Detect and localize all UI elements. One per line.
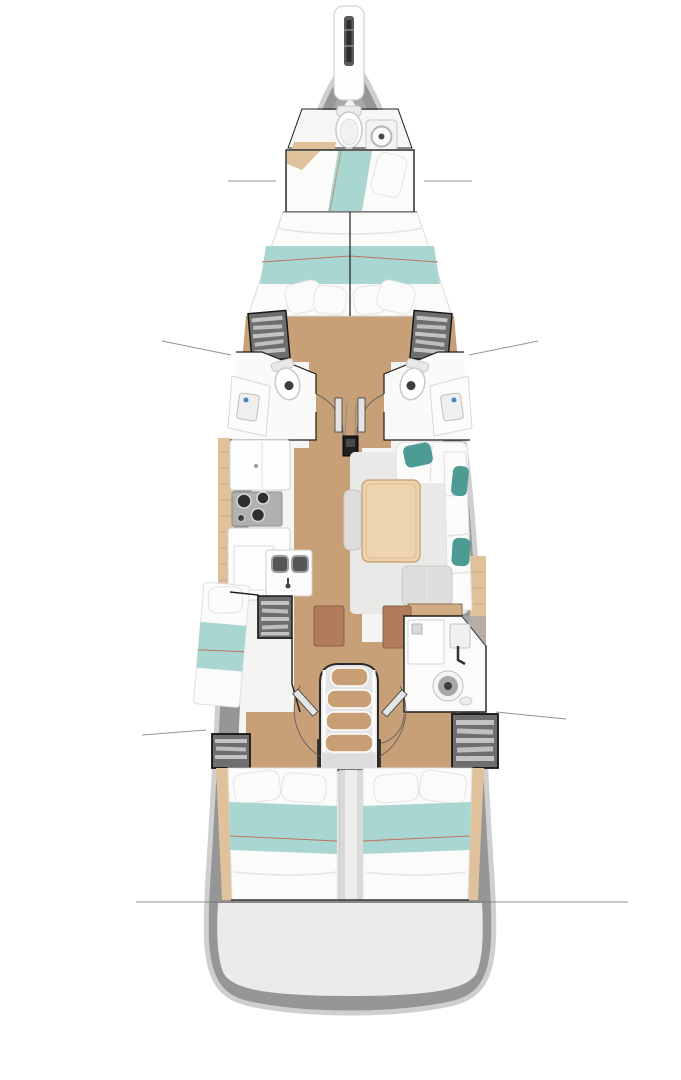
faucet [452,398,457,403]
leader-line [496,712,566,719]
bowsprit [334,6,364,100]
pillow [373,772,419,804]
locker-slat [261,632,289,636]
bed-blanket-teal [363,802,471,854]
burner-small [238,515,245,522]
forepeak-berth [286,150,414,212]
wardrobe-locker-aft-starboard [452,714,498,768]
pillow [418,769,468,805]
sink-basin [292,556,308,572]
faucet [244,398,249,403]
toilet-pedal [460,697,472,705]
sink-basin [236,393,259,422]
bench-seat [344,490,361,550]
engine-compartment [339,770,363,900]
locker-slat [456,720,494,725]
port-aft-cabin [216,768,337,900]
table-top [362,480,420,562]
stove [232,492,282,526]
anchor-roller-inner [347,20,352,62]
starboard-aft-cabin [363,768,484,900]
fridge-handle [254,464,258,468]
toilet-seat [340,119,358,145]
sink-basin [440,393,463,422]
leader-line [142,730,206,735]
salon [344,441,472,618]
locker-slat [261,601,289,605]
sink-basin [272,556,288,572]
mast-top [346,439,355,447]
shower-drain-center [379,134,385,140]
stair-step [325,734,373,752]
wardrobe-locker-aft-port [212,734,250,768]
toilet-drain [444,682,452,690]
stair-step [331,668,368,686]
door-panel [335,398,342,432]
locker-slat [261,617,289,621]
floor-head-corridor [309,362,391,448]
leader-line [469,341,538,355]
stair-step [327,690,372,708]
pillow [232,769,282,805]
vanity-sink [430,376,472,436]
sink-basin [450,624,470,648]
locker-slat [456,738,494,743]
screenshot-canvas [0,0,681,1080]
bed-blanket-teal [229,802,337,854]
transom-deck [217,903,483,996]
stairs-landing [323,754,375,769]
door-panel [358,398,365,432]
berth-blanket-teal [197,622,247,672]
owner-cabin [248,212,452,316]
fridge-counter [230,440,290,490]
yacht-layout-diagram [0,0,681,1080]
locker-slat [215,755,247,759]
leader-line [162,341,231,355]
wardrobe-locker-midship-port [258,596,292,638]
burner [252,509,265,522]
shower [366,120,397,153]
cabinet-vent [412,624,422,634]
locker-slat [215,739,247,743]
brown-panel-port [314,606,344,646]
pillow [208,587,242,614]
dining-table [362,480,420,562]
companionway [318,664,380,770]
faucet-base [286,584,291,589]
teal-pillow [451,537,471,566]
pillow [312,284,347,316]
locker-slat [456,756,494,761]
pillow [281,772,327,804]
galley-sink-unit [266,550,312,596]
toilet [336,106,362,148]
vanity-sink [228,376,270,436]
burner [237,494,251,508]
burner [257,492,269,504]
teal-pillow [450,465,469,497]
stair-step [326,712,372,730]
engine-column-highlight [345,770,357,900]
